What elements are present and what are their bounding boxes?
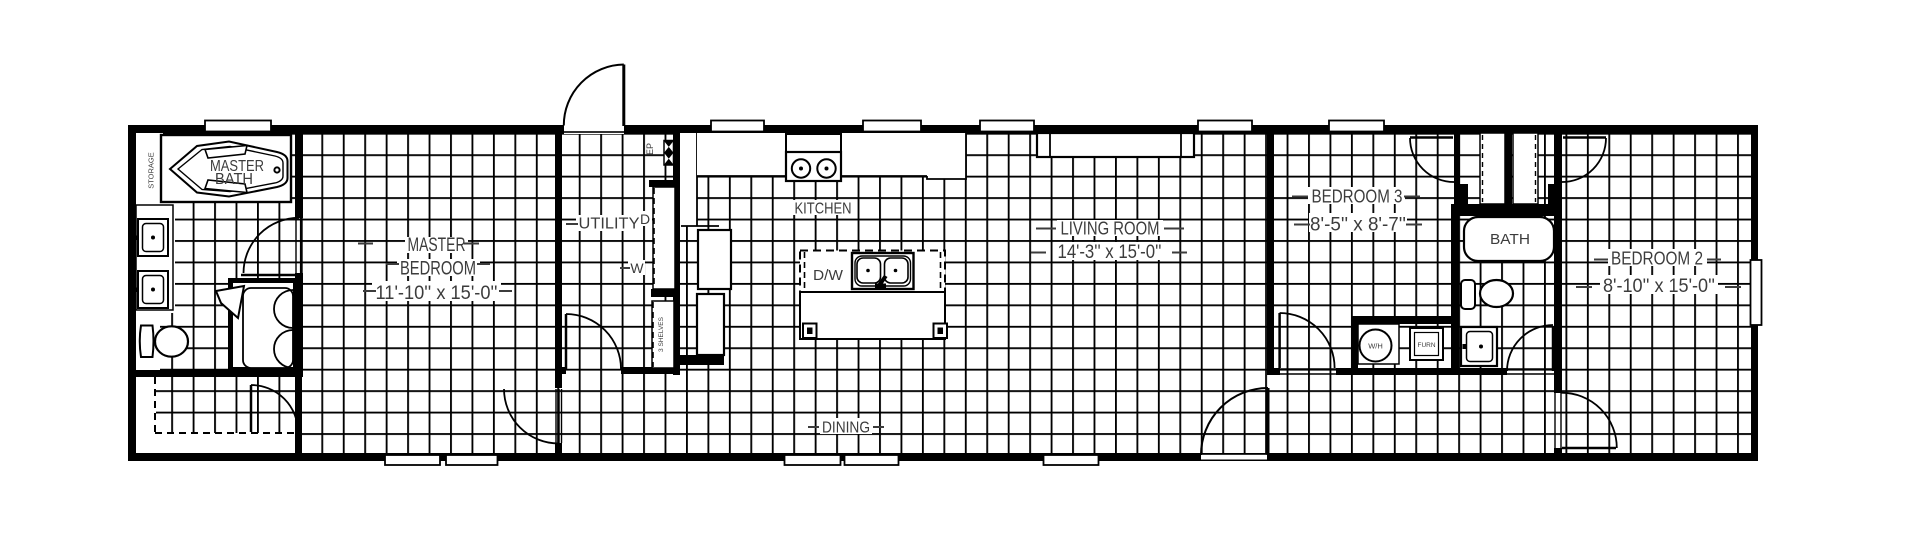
svg-text:14'-3'' x 15'-0'': 14'-3'' x 15'-0'' bbox=[1058, 242, 1162, 263]
svg-text:BATH: BATH bbox=[215, 171, 253, 188]
svg-text:3 SHELVES: 3 SHELVES bbox=[658, 316, 665, 352]
svg-text:D/W: D/W bbox=[813, 267, 844, 284]
svg-text:BATH: BATH bbox=[1490, 231, 1530, 248]
svg-text:D: D bbox=[640, 211, 650, 227]
svg-text:8'-5'' x 8'-7'': 8'-5'' x 8'-7'' bbox=[1310, 215, 1406, 236]
svg-text:W/H: W/H bbox=[1368, 342, 1383, 351]
svg-text:FURN: FURN bbox=[1417, 342, 1435, 349]
svg-text:W: W bbox=[630, 260, 644, 276]
svg-text:8'-10'' x 15'-0'': 8'-10'' x 15'-0'' bbox=[1603, 276, 1715, 297]
svg-text:DINING: DINING bbox=[822, 420, 870, 437]
svg-text:MASTER: MASTER bbox=[408, 235, 466, 256]
svg-text:BEDROOM 3: BEDROOM 3 bbox=[1312, 187, 1403, 207]
svg-text:KITCHEN: KITCHEN bbox=[795, 201, 852, 218]
svg-text:EP: EP bbox=[645, 143, 655, 155]
svg-text:BEDROOM: BEDROOM bbox=[400, 259, 476, 280]
svg-text:UTILITY: UTILITY bbox=[579, 216, 640, 233]
svg-text:BEDROOM 2: BEDROOM 2 bbox=[1611, 249, 1703, 269]
svg-text:STORAGE: STORAGE bbox=[147, 152, 156, 189]
svg-text:11'-10'' x 15'-0'': 11'-10'' x 15'-0'' bbox=[376, 282, 498, 304]
svg-text:LIVING ROOM: LIVING ROOM bbox=[1061, 219, 1160, 239]
